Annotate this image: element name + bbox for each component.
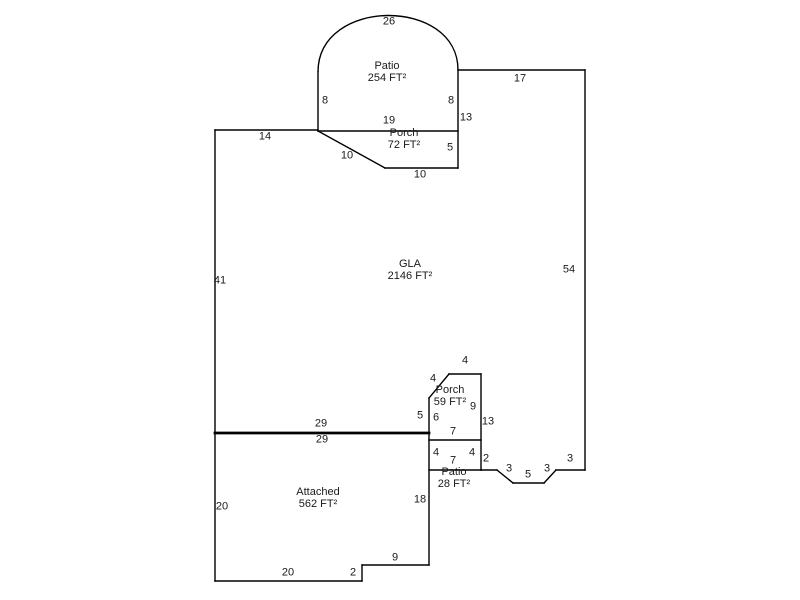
- dimension-label: 54: [563, 265, 575, 276]
- dimension-label: 9: [392, 553, 398, 564]
- dimension-label: 17: [514, 74, 526, 85]
- dimension-label: 26: [383, 17, 395, 28]
- dimension-label: 29: [316, 435, 328, 446]
- area-label: Patio28 FT²: [438, 466, 470, 490]
- dimension-label: 9: [470, 402, 476, 413]
- dimension-label: 8: [448, 96, 454, 107]
- dimension-label: 41: [214, 276, 226, 287]
- area-label: Porch59 FT²: [434, 384, 466, 408]
- dimension-label: 19: [383, 116, 395, 127]
- dimension-label: 2: [350, 568, 356, 579]
- dimension-label: 4: [462, 356, 468, 367]
- dimension-label: 3: [567, 454, 573, 465]
- dimension-label: 10: [341, 151, 353, 162]
- dimension-label: 4: [433, 448, 439, 459]
- area-label: GLA2146 FT²: [388, 258, 433, 282]
- dimension-label: 2: [483, 454, 489, 465]
- dimension-label: 20: [282, 568, 294, 579]
- area-label: Porch72 FT²: [388, 127, 420, 151]
- area-name: Patio: [368, 60, 407, 72]
- dimension-label: 8: [322, 96, 328, 107]
- area-name: Porch: [388, 127, 420, 139]
- area-name: Patio: [438, 466, 470, 478]
- dimension-label: 14: [259, 132, 271, 143]
- dimension-label: 7: [450, 427, 456, 438]
- area-label: Patio254 FT²: [368, 60, 407, 84]
- dimension-label: 3: [544, 464, 550, 475]
- dimension-label: 7: [450, 456, 456, 467]
- area-size: 562 FT²: [296, 498, 339, 510]
- dimension-label: 29: [315, 419, 327, 430]
- dimension-label: 18: [414, 495, 426, 506]
- floor-plan-page: 2688171913510101441542929445691374742353…: [0, 0, 800, 600]
- area-size: 72 FT²: [388, 139, 420, 151]
- area-size: 28 FT²: [438, 478, 470, 490]
- area-size: 59 FT²: [434, 396, 466, 408]
- dimension-label: 4: [469, 448, 475, 459]
- dimension-label: 5: [525, 470, 531, 481]
- area-label: Attached562 FT²: [296, 486, 339, 510]
- dimension-label: 5: [417, 411, 423, 422]
- area-name: GLA: [388, 258, 433, 270]
- area-name: Attached: [296, 486, 339, 498]
- area-size: 2146 FT²: [388, 270, 433, 282]
- dimension-label: 13: [460, 113, 472, 124]
- dimension-label: 10: [414, 170, 426, 181]
- dimension-label: 20: [216, 502, 228, 513]
- dimension-label: 4: [430, 374, 436, 385]
- area-size: 254 FT²: [368, 72, 407, 84]
- dimension-label: 6: [433, 413, 439, 424]
- area-name: Porch: [434, 384, 466, 396]
- dimension-label: 13: [482, 417, 494, 428]
- floor-plan-lines: [0, 0, 800, 600]
- dimension-label: 3: [506, 464, 512, 475]
- dimension-label: 5: [447, 143, 453, 154]
